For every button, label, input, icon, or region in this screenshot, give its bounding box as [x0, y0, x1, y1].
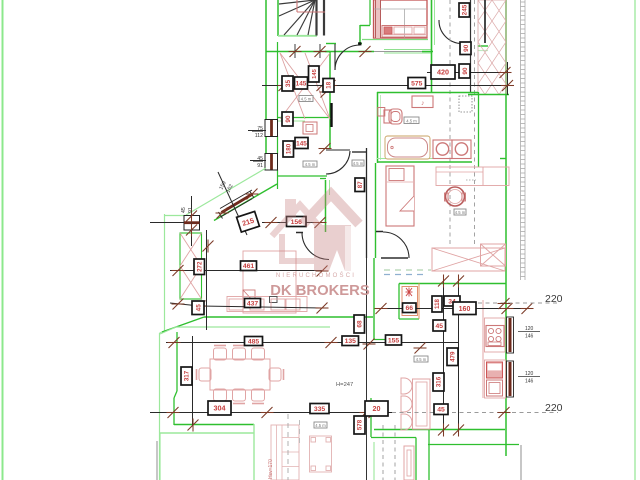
svg-text:91: 91 — [188, 207, 194, 213]
svg-text:145: 145 — [296, 80, 307, 87]
svg-text:♪: ♪ — [421, 100, 425, 107]
svg-text:145: 145 — [296, 140, 307, 147]
svg-text:35: 35 — [285, 80, 292, 88]
svg-text:4.5 m: 4.5 m — [455, 210, 466, 215]
svg-text:335: 335 — [314, 406, 326, 413]
svg-text:4.5 m: 4.5 m — [406, 118, 417, 123]
svg-text:91: 91 — [257, 163, 263, 169]
svg-text:437: 437 — [247, 300, 259, 307]
svg-text:90: 90 — [462, 67, 469, 75]
svg-text:180: 180 — [285, 143, 292, 154]
svg-text:4.5 m: 4.5 m — [353, 161, 364, 166]
svg-text:578: 578 — [357, 419, 364, 430]
svg-text:316: 316 — [436, 376, 443, 387]
svg-text:120: 120 — [525, 326, 534, 332]
svg-text:112: 112 — [255, 133, 263, 139]
svg-text:NIERUCHOMOŚCI: NIERUCHOMOŚCI — [276, 271, 356, 279]
svg-text:90: 90 — [285, 115, 292, 123]
svg-text:4.5 m: 4.5 m — [301, 96, 312, 101]
svg-text:304: 304 — [214, 404, 226, 413]
svg-text:68: 68 — [357, 320, 364, 328]
svg-text:461: 461 — [243, 263, 255, 270]
svg-text:317: 317 — [184, 370, 191, 381]
svg-text:45: 45 — [257, 156, 263, 162]
svg-text:75: 75 — [257, 126, 263, 132]
svg-text:118: 118 — [434, 298, 441, 309]
svg-text:45: 45 — [437, 407, 445, 414]
svg-text:575: 575 — [411, 80, 423, 87]
svg-text:90: 90 — [463, 44, 470, 52]
svg-text:155: 155 — [388, 337, 400, 344]
svg-text:135: 135 — [345, 338, 357, 345]
svg-text:485: 485 — [248, 338, 260, 345]
svg-text:479: 479 — [450, 351, 457, 362]
svg-text:45: 45 — [181, 207, 187, 213]
svg-text:4.5 m: 4.5 m — [416, 357, 427, 362]
svg-text:120: 120 — [525, 371, 534, 377]
svg-text:146: 146 — [525, 334, 534, 340]
svg-text:DK BROKERS: DK BROKERS — [270, 283, 370, 299]
svg-text:45: 45 — [195, 304, 202, 312]
svg-text:4.5 m: 4.5 m — [315, 423, 326, 428]
svg-text:272: 272 — [196, 261, 203, 272]
svg-text:146: 146 — [525, 379, 534, 385]
svg-text:20: 20 — [373, 404, 381, 413]
svg-text:87: 87 — [357, 181, 364, 188]
svg-text:66: 66 — [405, 305, 413, 312]
svg-text:145: 145 — [312, 68, 318, 78]
svg-text:220: 220 — [545, 402, 563, 414]
svg-text:18: 18 — [326, 81, 333, 88]
svg-text:45: 45 — [435, 323, 443, 330]
svg-text:160: 160 — [459, 306, 471, 313]
svg-text:245: 245 — [462, 4, 469, 15]
svg-text:220: 220 — [545, 293, 563, 305]
svg-text:H=247: H=247 — [336, 382, 353, 388]
svg-text:Hsv=170: Hsv=170 — [268, 459, 274, 479]
svg-text:420: 420 — [437, 68, 449, 77]
svg-text:4.5 m: 4.5 m — [305, 162, 316, 167]
